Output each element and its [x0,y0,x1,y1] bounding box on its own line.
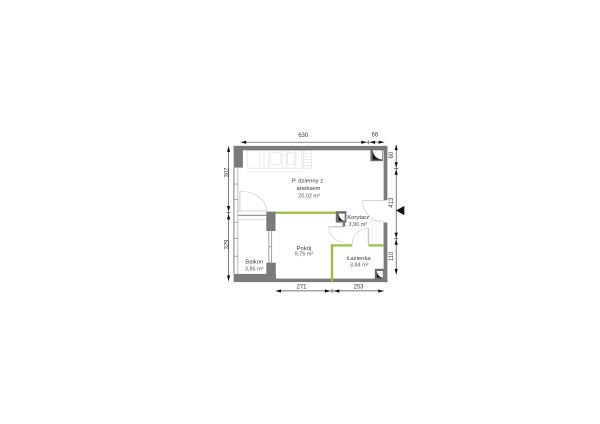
svg-text:60: 60 [389,151,395,158]
svg-text:9,75 m²: 9,75 m² [295,252,314,258]
svg-text:20,02 m²: 20,02 m² [298,193,320,199]
svg-text:aneksem: aneksem [297,186,321,192]
svg-text:271: 271 [296,284,307,290]
svg-text:413: 413 [389,197,395,208]
svg-text:P. dzienny z: P. dzienny z [292,179,323,185]
svg-text:3,90 m²: 3,90 m² [348,222,367,228]
svg-text:329: 329 [224,239,230,250]
svg-text:Balkon: Balkon [245,259,263,265]
svg-text:253: 253 [353,284,364,290]
svg-text:Korytarz: Korytarz [347,215,369,221]
svg-text:3,84 m²: 3,84 m² [350,262,369,268]
svg-text:110: 110 [389,251,395,261]
svg-text:307: 307 [224,167,230,178]
svg-text:66: 66 [372,133,379,139]
svg-text:Łazienka: Łazienka [347,256,371,262]
svg-text:3,86 m²: 3,86 m² [245,267,264,273]
svg-text:630: 630 [298,133,309,139]
